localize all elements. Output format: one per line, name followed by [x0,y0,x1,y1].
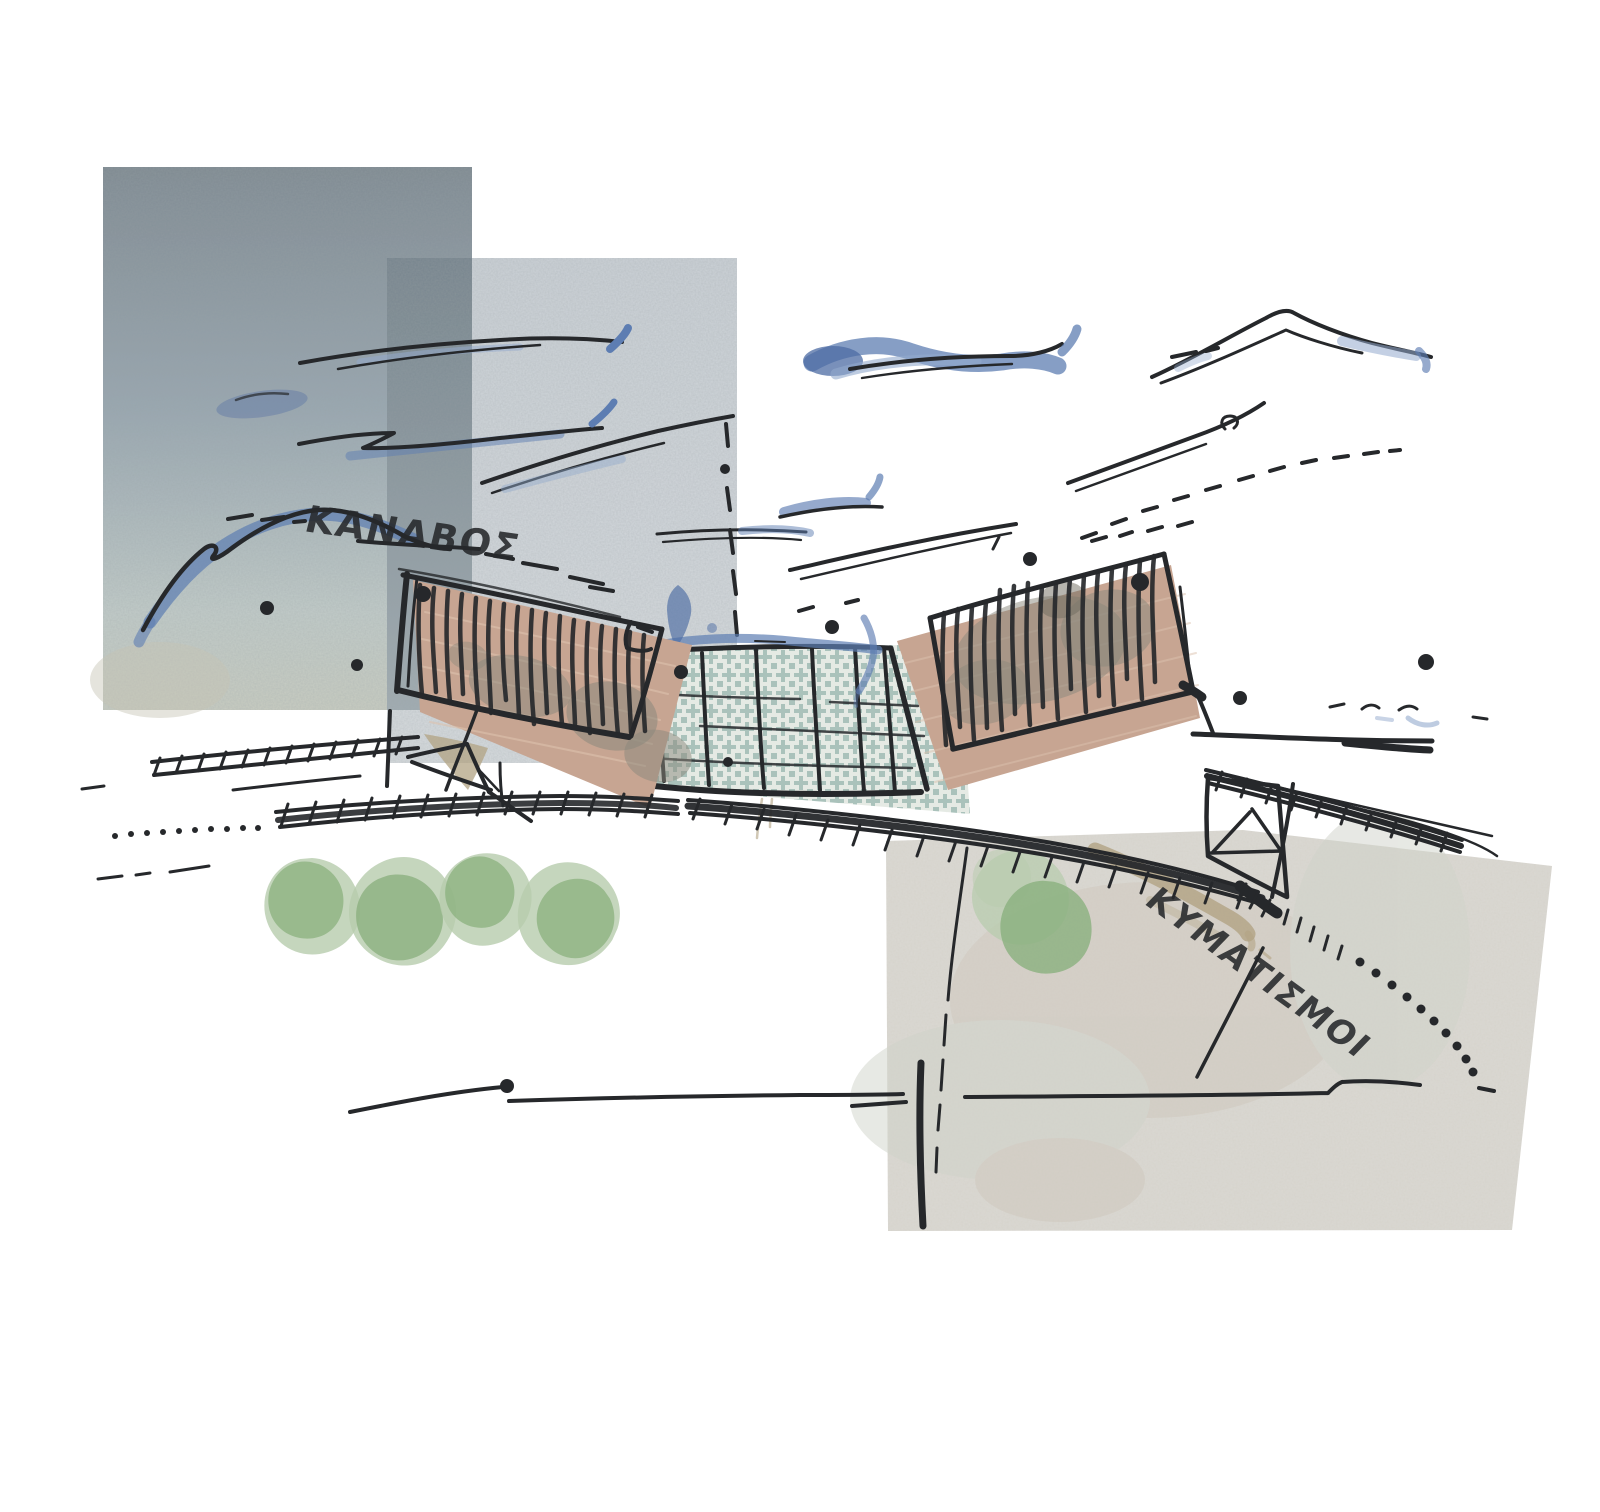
blue-smile [1408,718,1437,725]
vertical-stroke [920,1063,923,1226]
blue-dash [1377,718,1392,720]
band-b2-thick [1345,743,1430,750]
wall-left-underline [233,776,360,790]
bottom-line-mid [509,1094,903,1101]
building-right [897,554,1213,790]
wave-line [790,524,1016,570]
wave-line [1076,444,1206,491]
blue-flick [1062,329,1077,352]
bottom-line-left [350,1087,503,1112]
blue-flick [869,477,880,497]
wave-line [801,533,1011,579]
blue-speck [707,623,717,633]
wave-line [1068,403,1264,483]
blue-wash [742,529,810,533]
dotted-line [1082,450,1400,538]
panel-topleft-stain [90,642,230,718]
mountain-wave [1152,311,1431,377]
dot [720,464,730,474]
sketch-canvas: ΚΑΝΑΒΟΣ [0,0,1600,1512]
band-b2 [1193,734,1432,741]
dotted-contour-upper [1082,450,1400,538]
blue-flick [1419,351,1427,369]
dot-row [112,825,261,839]
squiggle-marks [1362,705,1417,710]
tick [993,537,999,549]
sketch-page: ΚΑΝΑΒΟΣ [0,0,1600,1512]
